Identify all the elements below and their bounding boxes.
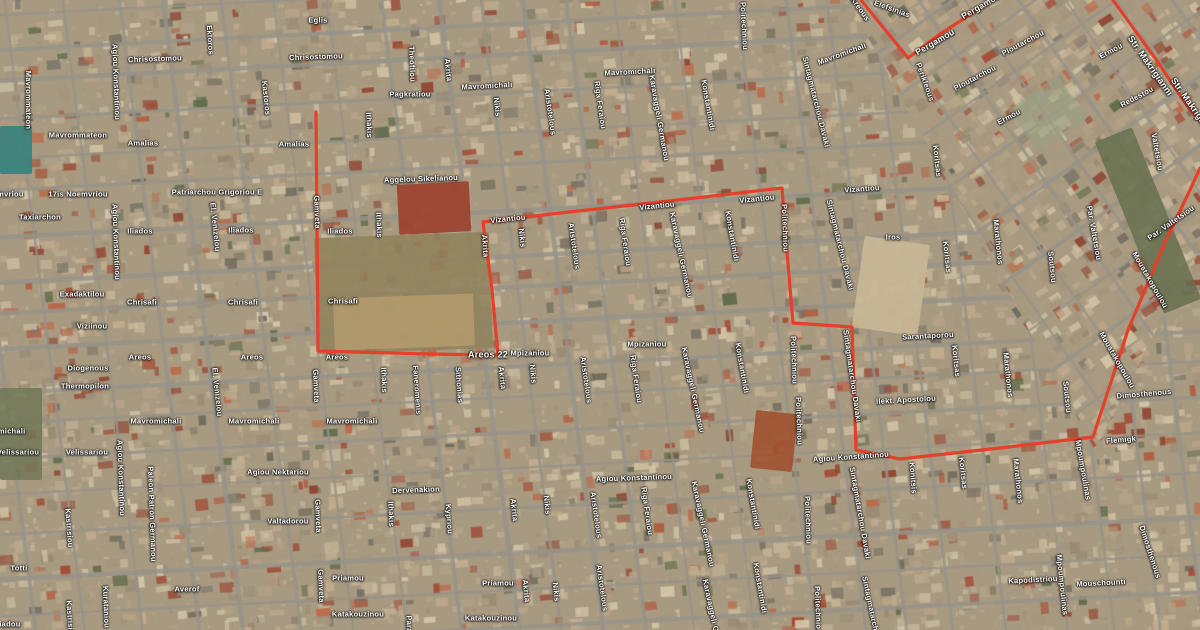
street-label: Politechniou — [803, 496, 812, 544]
street-label: Aristotelous — [579, 356, 593, 403]
street-label: Valtetsiou — [1150, 133, 1164, 172]
street-label: Agiou Konstantinou — [111, 44, 121, 120]
street-label: Konitsis — [908, 462, 918, 494]
street-label: Paleon Patron Germanou — [147, 466, 158, 562]
street-label: 17is Noemvriou — [48, 190, 107, 198]
street-label: Riga Feraiou — [640, 486, 654, 535]
street-label: Koritsas — [942, 241, 953, 274]
street-label: Ploutarchou — [1001, 29, 1046, 57]
street-label: Chrisafi — [228, 298, 258, 306]
street-label: 17is Noemvriou — [0, 190, 24, 198]
street-label: Vizantiou — [639, 200, 675, 211]
street-label: Nikis — [542, 495, 551, 515]
street-label: Kapodistriou — [1008, 575, 1058, 585]
street-label: Karavaggeli Germanou — [690, 481, 715, 568]
street-label: Ithakis — [380, 367, 388, 393]
street-label: Ithakis — [387, 501, 395, 527]
street-label: Aristotelous — [589, 491, 603, 538]
street-label: Aristotelous — [567, 222, 581, 269]
street-label: Areos — [129, 353, 152, 361]
street-label: Koritsas — [958, 457, 969, 490]
street-label: Nikis — [492, 97, 501, 117]
street-label: Karavaggeli Germanou — [701, 579, 726, 630]
street-label: Sintagmatarchou Davaki — [825, 199, 855, 291]
street-label: Areos — [241, 353, 264, 361]
street-label: Katakouzinou — [332, 610, 384, 618]
street-label: Mpoumpoulinas — [1055, 554, 1069, 615]
street-label: Politechniou — [739, 2, 749, 50]
street-label: Karavaggeli Germanou — [648, 74, 671, 161]
street-label: Eglis — [308, 16, 327, 24]
street-label: Politechniou — [780, 204, 789, 252]
street-label: Mpizaniou — [628, 340, 667, 348]
street-label: Politechniou — [794, 397, 803, 445]
street-label: Priamou — [482, 579, 514, 587]
street-label: Agiou Konstantinou — [813, 451, 889, 464]
street-label: Iliados — [327, 227, 353, 235]
street-label: Akrita — [497, 366, 507, 389]
street-label: Velissariou — [0, 448, 39, 456]
street-label: El. Venizelou — [211, 367, 224, 417]
street-label: Mavromichali — [461, 81, 512, 91]
street-label: Konstantinidi — [724, 210, 740, 262]
street-label: Mavromichali — [229, 417, 280, 425]
street-label: Ithakis — [365, 112, 373, 138]
street-label: Marathonos — [992, 219, 1004, 265]
street-label: Mpoumpoulinas — [1074, 439, 1092, 500]
street-label: Akrita — [443, 58, 453, 81]
street-label: Kastoros — [260, 80, 271, 115]
street-label: Para — [405, 615, 413, 630]
street-label: Sarantaporou — [902, 331, 954, 341]
street-label: Theofilou — [408, 46, 417, 82]
street-label: Thermopilon — [61, 382, 109, 390]
street-label: Perikleous — [915, 62, 936, 103]
satellite-map[interactable]: EglisChrisostomouChrisostomouEktorosMavr… — [0, 0, 1200, 630]
street-label: Patriarchou Grigoriou E — [172, 188, 263, 196]
street-label: Marathonos — [1012, 458, 1024, 504]
street-label: Aristotelous — [543, 88, 557, 135]
street-label: Vizantiou — [844, 184, 880, 194]
street-label: Dimosthenous — [1116, 388, 1172, 400]
street-label: Gamveta — [313, 195, 322, 229]
street-label: Kypriou — [444, 504, 454, 535]
street-label: Pergamou — [960, 0, 1002, 21]
street-label: Velissariou — [66, 448, 108, 456]
street-label: Miltiadou — [0, 620, 21, 628]
street-label: Mouschounti — [1076, 578, 1126, 588]
street-label: Katakouzinou — [465, 614, 517, 622]
street-label: Mavromichali — [817, 42, 867, 66]
street-label: Akrita — [509, 498, 519, 521]
street-label: Iros — [886, 233, 901, 241]
street-label: Soutsou — [1047, 251, 1058, 283]
street-label: Agiou Konstantinou — [116, 440, 126, 516]
street-label: Vizantiou — [739, 193, 775, 204]
street-label: Koritsas — [932, 145, 943, 178]
street-label: Diogenous — [68, 364, 109, 372]
street-label: Gamveta — [314, 499, 323, 533]
street-label: Kastrisiou — [65, 600, 75, 630]
street-label: Nikis — [528, 364, 537, 384]
street-label: Aristotelous — [595, 564, 609, 611]
street-label: Taxiarchon — [19, 213, 61, 221]
street-label: Nikis — [551, 582, 560, 602]
street-label: Par. Valtetsiou — [1146, 204, 1195, 242]
street-label: Iliados — [228, 226, 254, 234]
street-label: Karavaggeli Germanou — [668, 212, 693, 299]
street-label: Agiou Nektariou — [247, 468, 309, 476]
street-label: Kurataniou — [102, 586, 111, 628]
street-label: Pagkratiou — [389, 90, 430, 98]
street-label: Pergamou — [914, 27, 956, 56]
street-label: Chrisostomou — [128, 54, 182, 63]
street-label: Riga Feraiou — [629, 354, 643, 403]
street-label: Marathonos — [1002, 352, 1014, 398]
street-label: Sintagmatarchou Davaki — [848, 467, 872, 560]
street-label: Agiou Konstantinou — [111, 204, 121, 280]
street-label: Sintagmatarchou Davaki — [861, 576, 888, 630]
street-label: Ithakis — [375, 212, 383, 238]
street-label: Karavaggeli Germanou — [680, 347, 705, 434]
street-label: Dervenakion — [392, 485, 440, 494]
street-label: Valtadorou — [267, 517, 308, 525]
street-label: Aggelou Sikelianou — [384, 174, 458, 184]
street-label: Ermou — [1098, 42, 1124, 60]
street-label: Koritsas — [951, 345, 962, 378]
street-label: Politechniou — [789, 336, 798, 384]
street-label: Ermou — [996, 108, 1022, 126]
street-label: Konstantinidi — [745, 478, 761, 530]
street-label: Mavrommateon — [49, 131, 107, 139]
street-label: Sithonias — [454, 367, 464, 403]
street-label: Konstantinidi — [752, 562, 768, 614]
street-label: Vizantiou — [490, 213, 526, 224]
street-label: Konstantinidi — [700, 79, 716, 131]
street-label: Str. Makrigianni — [1169, 76, 1200, 139]
street-label: Mpizaniou — [511, 349, 550, 357]
street-label: Ektoros — [205, 25, 215, 55]
street-label: Gamveta — [317, 569, 326, 603]
street-label: Politechniou — [813, 586, 822, 630]
street-label: Elefsinias — [873, 0, 911, 19]
street-label: Mavromichali — [131, 417, 182, 425]
street-label: Akrita — [480, 234, 489, 257]
street-label: Nikis — [517, 228, 526, 248]
street-label: Riga Feraiou — [618, 217, 632, 266]
street-label: Mavromichali — [327, 417, 378, 425]
street-label: Ilekt. Apostolou — [876, 395, 936, 406]
street-label: Konstantinidi — [734, 342, 750, 394]
street-label: Soutsou — [1062, 381, 1073, 413]
street-label: Moustakopoulou — [1098, 331, 1136, 390]
street-label: Faneromenis — [412, 365, 423, 415]
street-label: Agiou Konstantinou — [596, 473, 672, 483]
street-label: Sintagmatarchou Davaki — [801, 56, 831, 148]
street-label: El. Venizelou — [209, 202, 222, 252]
street-label: Averof — [175, 585, 200, 593]
street-label: Amalias — [279, 140, 310, 148]
street-label: Chrisafi — [328, 297, 358, 305]
street-label: Viziinou — [77, 322, 108, 330]
street-label: Kastrisiou — [64, 508, 74, 548]
street-label: Iliados — [127, 227, 153, 235]
street-label: Mavrommateon — [24, 71, 32, 129]
street-label: Riga Feraiou — [593, 80, 607, 129]
street-label: Gamveta — [312, 369, 321, 403]
street-label: Amalias — [128, 139, 159, 147]
street-label: Par. Valtetsiou — [1086, 205, 1103, 260]
street-label: Redestou — [1119, 85, 1154, 109]
street-label: Chrisafi — [127, 298, 157, 306]
street-label: Kreous — [849, 0, 871, 22]
street-label: Moustakopoulou — [1131, 251, 1169, 310]
street-label: Exadaktilou — [60, 290, 105, 298]
street-label: Ploutarchou — [953, 64, 998, 92]
street-label: Mavromichali — [0, 427, 25, 435]
street-label: Chrisostomou — [289, 52, 343, 61]
street-label: Areos 22 — [468, 351, 508, 360]
street-label: Dimosthenous — [1138, 525, 1162, 580]
street-label: Areos — [326, 353, 349, 361]
street-label: Sintagmatarchou Davaki — [842, 329, 862, 422]
street-label: Totti — [11, 564, 28, 572]
street-labels-layer: EglisChrisostomouChrisostomouEktorosMavr… — [0, 0, 1200, 630]
street-label: Akrita — [521, 579, 531, 602]
street-label: Flemigk — [1106, 435, 1137, 445]
street-label: Priamou — [332, 574, 364, 582]
